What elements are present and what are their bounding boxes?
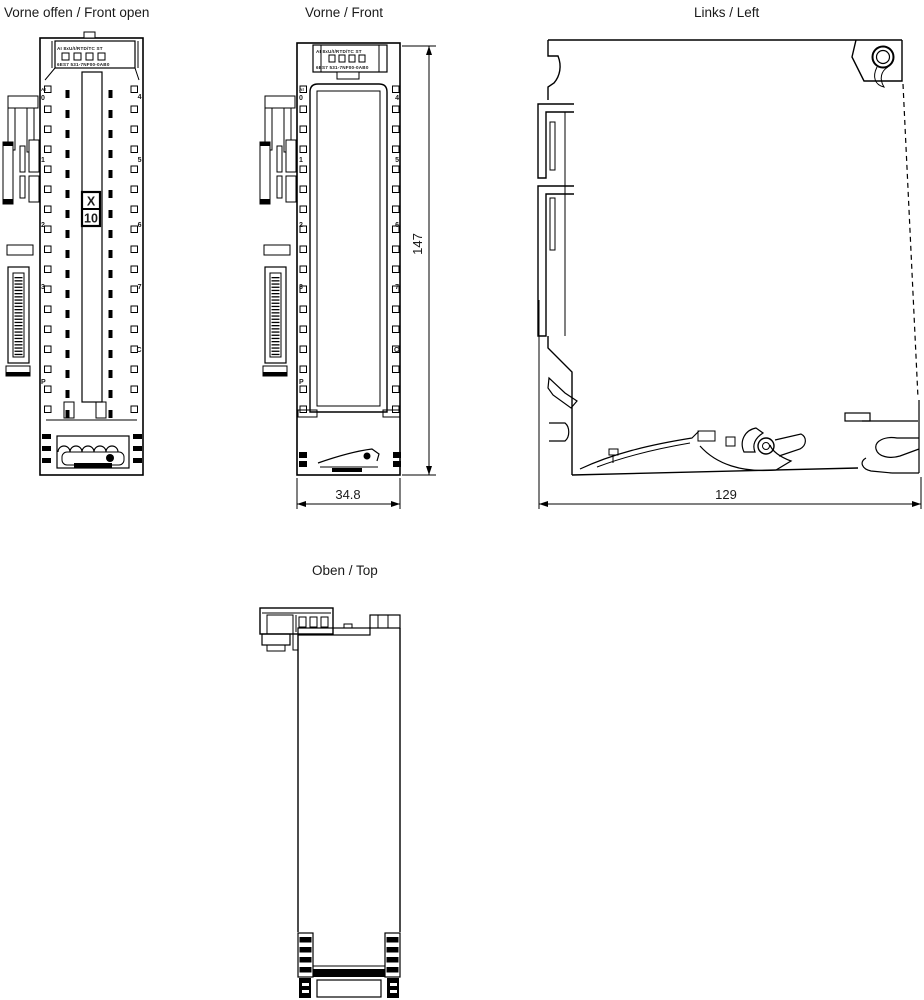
mark bbox=[300, 937, 312, 943]
mark bbox=[15, 331, 23, 332]
mark bbox=[109, 90, 113, 98]
release-lever-top bbox=[580, 431, 699, 469]
module-label-line1: AI 8xU/I/RTD/TC ST bbox=[316, 49, 362, 54]
mark bbox=[387, 937, 399, 943]
dim-depth-lines bbox=[539, 300, 921, 509]
bus-block-window bbox=[267, 615, 293, 634]
small-tab bbox=[726, 437, 735, 446]
mark bbox=[15, 322, 23, 323]
dimension-drawing: Vorne offen / Front open AI 8xU/I/RTD/TC… bbox=[0, 0, 924, 1000]
mark bbox=[387, 957, 399, 963]
top-tab bbox=[84, 32, 95, 38]
latch-wing bbox=[775, 434, 805, 456]
terminal-square bbox=[131, 146, 138, 153]
terminal-square bbox=[393, 166, 400, 173]
screw-hook-curl bbox=[875, 67, 888, 87]
technical-drawing-canvas: Vorne offen / Front open AI 8xU/I/RTD/TC… bbox=[0, 0, 924, 1000]
terminal-square bbox=[393, 306, 400, 313]
stripe-bands-right bbox=[387, 937, 399, 973]
top-view-sides bbox=[298, 628, 400, 932]
terminal-square bbox=[131, 286, 138, 293]
mark bbox=[66, 410, 70, 418]
mark bbox=[15, 283, 23, 284]
connector-black-bar bbox=[313, 969, 385, 977]
terminal-square bbox=[45, 286, 52, 293]
right-mount-hook bbox=[862, 400, 919, 473]
mark bbox=[109, 110, 113, 118]
dim-height-lines bbox=[402, 46, 436, 475]
view-title-top: Oben / Top bbox=[312, 563, 378, 578]
mark bbox=[15, 296, 23, 297]
terminal-square bbox=[300, 246, 307, 253]
stripe-bands-left bbox=[300, 937, 312, 973]
din-rail-profile bbox=[538, 40, 577, 475]
x10-letter: X bbox=[87, 195, 96, 209]
view-title-front: Vorne / Front bbox=[305, 5, 383, 20]
mark bbox=[15, 293, 23, 294]
terminal-number: 4 bbox=[395, 95, 399, 102]
terminal-number: P bbox=[299, 379, 304, 386]
terminal-group-label: AI bbox=[41, 87, 46, 92]
guide-block bbox=[29, 176, 39, 202]
mark bbox=[15, 299, 23, 300]
terminal-group-label: AI bbox=[299, 87, 304, 92]
terminal-square bbox=[45, 186, 52, 193]
mark bbox=[109, 290, 113, 298]
mark bbox=[15, 344, 23, 345]
terminal-number: 6 bbox=[138, 222, 142, 229]
bottom-mechanism bbox=[572, 400, 919, 475]
notch bbox=[698, 431, 715, 441]
terminal-square bbox=[393, 246, 400, 253]
dim-width-value: 34.8 bbox=[335, 487, 360, 502]
thin-strip bbox=[20, 146, 25, 172]
terminal-square bbox=[393, 366, 400, 373]
mark bbox=[109, 170, 113, 178]
terminal-square bbox=[131, 226, 138, 233]
step-piece bbox=[7, 245, 33, 255]
mark bbox=[15, 290, 23, 291]
mark bbox=[15, 280, 23, 281]
terminal-number: 0 bbox=[41, 95, 45, 102]
terminal-square bbox=[131, 306, 138, 313]
terminal-number: C bbox=[394, 347, 399, 354]
pivot-screw-outer bbox=[758, 438, 774, 454]
terminal-square bbox=[45, 326, 52, 333]
teeth-right-block bbox=[370, 615, 400, 628]
mark bbox=[300, 957, 312, 963]
mark bbox=[66, 150, 70, 158]
terminal-square bbox=[45, 306, 52, 313]
terminal-square bbox=[300, 346, 307, 353]
mark bbox=[15, 306, 23, 307]
mark bbox=[109, 410, 113, 418]
terminal-square bbox=[393, 186, 400, 193]
terminal-square bbox=[300, 326, 307, 333]
terminal-square bbox=[45, 106, 52, 113]
x10-connector-label: X 10 bbox=[82, 192, 100, 226]
module-label-line2: 6ES7 531-7NF00-0AB0 bbox=[57, 62, 110, 67]
head-foot bbox=[262, 634, 290, 645]
terminal-number: 4 bbox=[138, 94, 142, 101]
terminal-number: 3 bbox=[299, 284, 303, 291]
mark bbox=[109, 270, 113, 278]
mark bbox=[66, 190, 70, 198]
dimension-width: 34.8 bbox=[297, 478, 400, 509]
terminal-square bbox=[131, 246, 138, 253]
top-view-head bbox=[260, 608, 400, 651]
terminal-square bbox=[131, 86, 138, 93]
mark bbox=[109, 370, 113, 378]
bus-attachments bbox=[260, 96, 296, 376]
front-connector-channel bbox=[82, 72, 102, 402]
terminal-number: 3 bbox=[41, 284, 45, 291]
bracket-slot bbox=[550, 122, 555, 170]
mark bbox=[15, 354, 23, 355]
mark bbox=[300, 967, 312, 973]
mark bbox=[15, 312, 23, 313]
terminal-square bbox=[131, 166, 138, 173]
terminal-square bbox=[45, 406, 52, 413]
x10-number: 10 bbox=[84, 212, 98, 226]
rail-latch bbox=[549, 423, 569, 441]
terminal-number: 2 bbox=[41, 222, 45, 229]
screw-hole-inner bbox=[877, 51, 890, 64]
terminal-square bbox=[393, 266, 400, 273]
mark bbox=[66, 130, 70, 138]
terminal-square bbox=[393, 406, 400, 413]
mark bbox=[15, 287, 23, 288]
pivot-screw-inner bbox=[763, 443, 770, 450]
mark bbox=[66, 370, 70, 378]
dimension-depth: 129 bbox=[539, 300, 921, 509]
terminal-square bbox=[131, 326, 138, 333]
terminal-square bbox=[393, 326, 400, 333]
mark bbox=[15, 319, 23, 320]
thin-strip bbox=[20, 176, 25, 198]
mark bbox=[387, 947, 399, 953]
mark bbox=[15, 338, 23, 339]
mark bbox=[109, 250, 113, 258]
mark bbox=[66, 350, 70, 358]
terminal-square bbox=[393, 126, 400, 133]
terminal-square bbox=[300, 206, 307, 213]
dim-depth-value: 129 bbox=[715, 487, 737, 502]
terminal-square bbox=[300, 366, 307, 373]
terminal-square bbox=[45, 166, 52, 173]
view-left: Links / Left bbox=[538, 5, 921, 509]
terminal-number: 6 bbox=[395, 222, 399, 229]
lower-bracket bbox=[538, 186, 574, 336]
terminal-square bbox=[300, 306, 307, 313]
mark bbox=[15, 277, 23, 278]
terminal-square bbox=[300, 166, 307, 173]
mark bbox=[66, 170, 70, 178]
guide-block bbox=[29, 140, 39, 172]
terminal-number: 5 bbox=[138, 157, 142, 164]
mark bbox=[387, 967, 399, 973]
terminal-number: P bbox=[41, 379, 46, 386]
terminal-square bbox=[131, 386, 138, 393]
mark bbox=[66, 390, 70, 398]
front-edge-dashed bbox=[903, 84, 918, 398]
latch-body bbox=[700, 445, 791, 471]
terminal-number: 5 bbox=[395, 157, 399, 164]
teeth-left bbox=[299, 617, 328, 627]
terminal-square bbox=[393, 206, 400, 213]
view-title-front-open: Vorne offen / Front open bbox=[4, 5, 149, 20]
terminal-square bbox=[45, 146, 52, 153]
terminal-square bbox=[393, 386, 400, 393]
terminal-square bbox=[45, 246, 52, 253]
terminal-square bbox=[45, 226, 52, 233]
mark bbox=[109, 390, 113, 398]
bracket-top-bar bbox=[8, 96, 38, 108]
module-label-line1: AI 8xU/I/RTD/TC ST bbox=[57, 46, 103, 51]
terminal-square bbox=[393, 146, 400, 153]
mark bbox=[66, 90, 70, 98]
mark bbox=[15, 347, 23, 348]
dim-height-value: 147 bbox=[410, 233, 425, 255]
bottom-bar bbox=[332, 468, 362, 472]
gap-slot bbox=[845, 413, 870, 421]
upper-bracket bbox=[538, 104, 574, 178]
terminal-square bbox=[300, 266, 307, 273]
mark bbox=[109, 230, 113, 238]
locking-dot bbox=[106, 454, 114, 462]
bracket-slot bbox=[550, 198, 555, 250]
mark bbox=[66, 330, 70, 338]
mark bbox=[66, 270, 70, 278]
mark bbox=[15, 335, 23, 336]
view-front: Vorne / Front AI 8xU/I/RTD/TC ST 6ES7 53… bbox=[260, 5, 436, 509]
terminal-square bbox=[45, 386, 52, 393]
dimension-height: 147 bbox=[402, 46, 436, 475]
view-title-left: Links / Left bbox=[694, 5, 760, 20]
connector-slot bbox=[317, 980, 381, 997]
mark bbox=[66, 290, 70, 298]
terminal-square bbox=[300, 386, 307, 393]
terminal-square bbox=[131, 366, 138, 373]
mark bbox=[15, 328, 23, 329]
terminal-square bbox=[131, 406, 138, 413]
mark bbox=[109, 350, 113, 358]
terminal-square bbox=[300, 186, 307, 193]
mark bbox=[109, 190, 113, 198]
terminal-number: 7 bbox=[138, 284, 142, 291]
mark bbox=[66, 310, 70, 318]
lever-pivot-dot bbox=[364, 453, 371, 460]
mark bbox=[300, 947, 312, 953]
mark bbox=[66, 210, 70, 218]
mark bbox=[66, 250, 70, 258]
bottom-foot-cap bbox=[6, 372, 30, 376]
terminal-number: C bbox=[136, 347, 141, 354]
connector-bar bbox=[74, 463, 112, 468]
teeth-right-dividers bbox=[378, 615, 388, 628]
mark bbox=[66, 230, 70, 238]
small-bolt bbox=[609, 449, 618, 463]
terminal-square bbox=[300, 406, 307, 413]
terminal-square bbox=[393, 86, 400, 93]
screw-hole-outer bbox=[873, 47, 894, 68]
top-right-screw-block bbox=[852, 40, 902, 87]
mark bbox=[109, 130, 113, 138]
upper-rail-hook bbox=[548, 40, 560, 100]
terminal-square bbox=[300, 146, 307, 153]
terminal-square bbox=[300, 126, 307, 133]
terminal-square bbox=[131, 106, 138, 113]
mark bbox=[66, 110, 70, 118]
terminal-square bbox=[131, 266, 138, 273]
view-top: Oben / Top bbox=[260, 563, 400, 998]
terminal-square bbox=[45, 346, 52, 353]
terminal-square bbox=[393, 106, 400, 113]
door-latch-tab bbox=[337, 72, 359, 79]
mark bbox=[109, 330, 113, 338]
side-plate bbox=[3, 142, 13, 204]
mark bbox=[15, 315, 23, 316]
top-view-front-connector bbox=[298, 933, 400, 998]
terminal-number: 7 bbox=[395, 284, 399, 291]
terminal-number: 1 bbox=[41, 157, 45, 164]
view-front-open: Vorne offen / Front open AI 8xU/I/RTD/TC… bbox=[3, 5, 149, 475]
mark bbox=[15, 351, 23, 352]
terminal-number: 1 bbox=[299, 157, 303, 164]
bottom-edge bbox=[572, 468, 858, 475]
mark bbox=[15, 303, 23, 304]
bus-attachments bbox=[3, 96, 39, 376]
terminal-number: 0 bbox=[299, 95, 303, 102]
mark bbox=[15, 325, 23, 326]
terminal-square bbox=[45, 206, 52, 213]
mark bbox=[15, 309, 23, 310]
terminal-square bbox=[131, 126, 138, 133]
terminal-number: 2 bbox=[299, 222, 303, 229]
terminal-square bbox=[300, 106, 307, 113]
head-left-step bbox=[293, 634, 298, 650]
terminal-square bbox=[131, 186, 138, 193]
module-label-line2: 6ES7 531-7NF00-0AB0 bbox=[316, 65, 369, 70]
mark bbox=[109, 210, 113, 218]
mark bbox=[109, 150, 113, 158]
mark bbox=[15, 341, 23, 342]
terminal-square bbox=[131, 206, 138, 213]
mark bbox=[109, 310, 113, 318]
terminal-square bbox=[45, 266, 52, 273]
terminal-square bbox=[45, 366, 52, 373]
terminal-square bbox=[45, 126, 52, 133]
head-foot-step bbox=[267, 645, 285, 651]
